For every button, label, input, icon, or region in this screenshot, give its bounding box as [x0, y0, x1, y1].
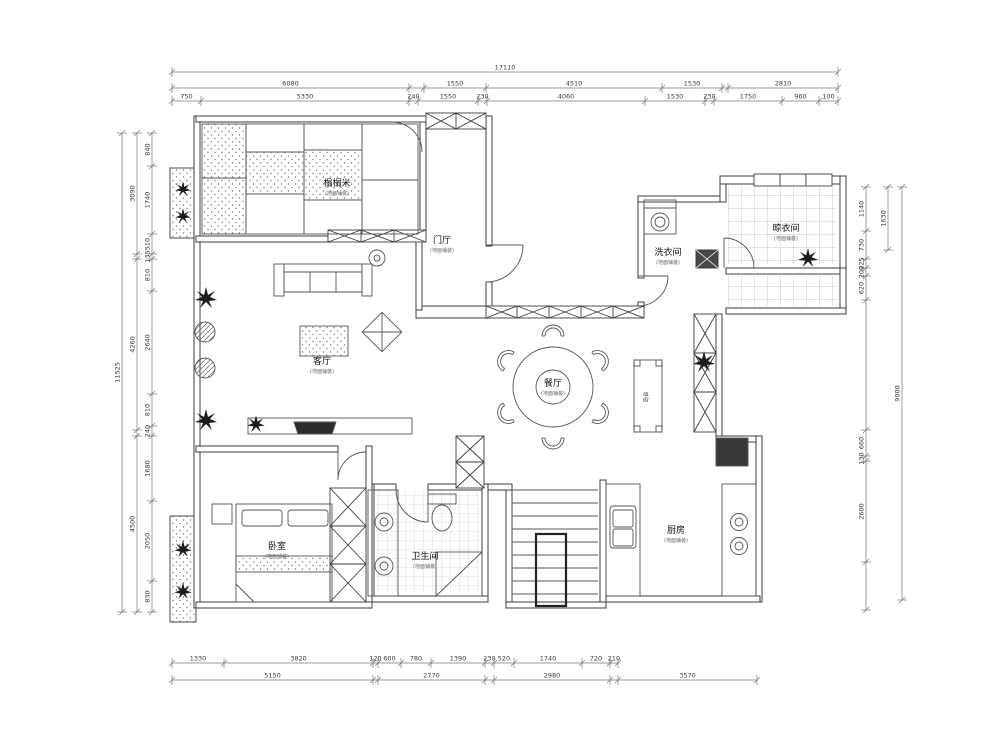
tatami-mats	[202, 124, 418, 234]
stairs	[512, 490, 598, 606]
dim-label: 810	[144, 269, 152, 281]
dim-label: 520	[498, 655, 510, 663]
dim-label: 1390	[450, 655, 467, 663]
dim-label: 4260	[129, 336, 137, 353]
sofa	[274, 264, 372, 296]
dim-label: 11525	[114, 362, 122, 383]
dim-label: 2980	[544, 672, 561, 680]
dim-label: 210	[608, 655, 620, 663]
dim-label: 4500	[129, 516, 137, 533]
dim-label: 240	[407, 93, 419, 101]
dim-label: 1740	[144, 192, 152, 209]
dim-label: 120	[369, 655, 381, 663]
dim-label: 810	[144, 404, 152, 416]
island-label: 岛台	[642, 391, 650, 403]
floor-plan-drawing: 1711060801550451015302810750533024015502…	[0, 0, 1000, 750]
dim-label: 830	[144, 590, 152, 602]
room-label: 洗衣间	[654, 246, 681, 258]
dim-label: 730	[858, 239, 866, 251]
room-label: 客厅	[313, 355, 331, 367]
room-sublabel: (地面铺装)	[541, 390, 565, 397]
dim-label: 1550	[440, 93, 457, 101]
dim-label: 230	[483, 655, 495, 663]
stool	[195, 322, 215, 342]
dim-label: 1630	[880, 210, 888, 227]
room-sublabel: (地面铺装)	[325, 190, 349, 197]
dim-label: 960	[794, 93, 806, 101]
bay-windows	[170, 168, 196, 622]
room-label: 晾衣间	[772, 222, 799, 234]
dim-label: 2640	[144, 334, 152, 351]
kitchen-fixtures	[606, 438, 756, 596]
room-label: 卧室	[268, 540, 286, 552]
dim-label: 2050	[144, 533, 152, 550]
dim-label: 2600	[858, 503, 866, 520]
room-sublabel: (地面铺装)	[310, 368, 334, 375]
dim-label: 17110	[495, 64, 516, 72]
room-sublabel: (地面铺装)	[413, 563, 437, 570]
stool	[195, 358, 215, 378]
dim-label: 6080	[282, 80, 299, 88]
nightstand	[212, 504, 232, 524]
dim-label: 1740	[540, 655, 557, 663]
washing-machine	[644, 200, 676, 234]
coffee-table	[300, 326, 348, 356]
dim-label: 9000	[894, 385, 902, 402]
dim-label: 230	[476, 93, 488, 101]
dim-label: 5330	[297, 93, 314, 101]
dim-label: 200	[858, 266, 866, 278]
dim-label: 1140	[858, 201, 866, 218]
dim-label: 600	[383, 655, 395, 663]
dim-label: 1680	[144, 460, 152, 477]
dim-label: 720	[590, 655, 602, 663]
room-sublabel: (地面铺装)	[774, 235, 798, 242]
dim-label: 620	[858, 282, 866, 294]
door-arcs	[338, 122, 754, 522]
room-label: 榻榻米	[323, 177, 350, 189]
dim-label: 5150	[264, 672, 281, 680]
dim-label: 750	[180, 93, 192, 101]
room-label: 厨房	[667, 524, 685, 536]
dim-label: 3820	[290, 655, 307, 663]
dim-label: 1530	[684, 80, 701, 88]
dim-label: 2810	[775, 80, 792, 88]
room-label: 门厅	[433, 234, 451, 246]
dim-label: 840	[144, 143, 152, 155]
dim-label: 1750	[740, 93, 757, 101]
room-sublabel: (地面铺装)	[656, 259, 680, 266]
room-sublabel: (地面铺装)	[664, 537, 688, 544]
room-sublabel: (地面铺装)	[265, 553, 289, 560]
dim-label: 4510	[566, 80, 583, 88]
dim-label: 1530	[667, 93, 684, 101]
dim-label: 660	[858, 437, 866, 449]
room-label: 卫生间	[411, 550, 438, 562]
dim-label: 240	[144, 425, 152, 437]
dim-label: 135	[144, 250, 152, 262]
fridge	[716, 438, 748, 466]
floor-plan-page: 1711060801550451015302810750533024015502…	[0, 0, 1000, 750]
dim-label: 130	[858, 452, 866, 464]
bed	[236, 504, 332, 602]
room-sublabel: (地面铺装)	[430, 247, 454, 254]
dim-label: 4060	[558, 93, 575, 101]
dim-label: 3090	[129, 185, 137, 202]
dim-label: 230	[703, 93, 715, 101]
side-lamp	[369, 250, 385, 266]
tv	[294, 422, 336, 434]
dim-label: 1330	[190, 655, 207, 663]
dim-label: 100	[822, 93, 834, 101]
dim-label: 780	[410, 655, 422, 663]
dim-label: 2770	[423, 672, 440, 680]
room-label: 餐厅	[544, 377, 562, 389]
dim-label: 1550	[447, 80, 464, 88]
dim-label: 3570	[679, 672, 696, 680]
armchair	[362, 312, 402, 352]
dim-label: 510	[144, 238, 152, 250]
